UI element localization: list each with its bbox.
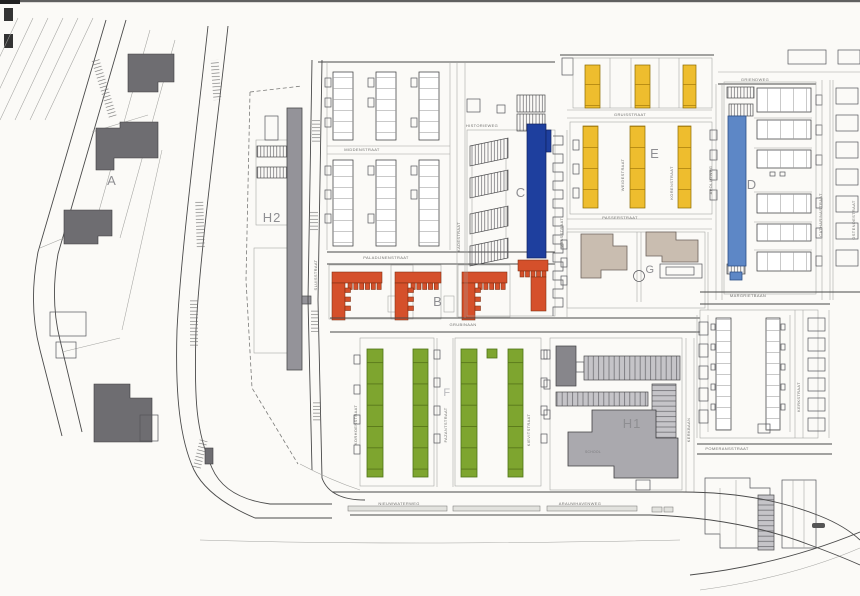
street-label: OSTENDESTRAAT — [851, 200, 856, 240]
block-label-e: E — [650, 146, 660, 161]
street-label: GRUBINAAN — [450, 322, 477, 327]
parcel-h1 — [544, 338, 694, 492]
street-label: MIDDENSTRAAT — [344, 147, 380, 152]
parcel-d — [700, 50, 860, 304]
street-label: KADESTRAAT — [456, 222, 461, 252]
district-a — [0, 18, 332, 518]
block-b-buildings — [332, 272, 507, 320]
c-slanted-rowhouses — [470, 138, 508, 266]
street-label: POMERANSSTRAAT — [705, 446, 748, 451]
block-label-a: A — [107, 173, 117, 188]
street-label: KERKBAAN — [686, 418, 691, 443]
block-label-g: G — [645, 264, 654, 276]
street-label: MARGRIETBAAN — [730, 293, 766, 298]
outline-building — [265, 116, 278, 140]
block-label-h2: H2 — [263, 210, 282, 225]
road-median — [348, 506, 673, 512]
street-label: GRUISSTRAAT — [614, 112, 646, 117]
hatch-corner-lines — [0, 18, 93, 120]
street-label: GRIENDWEG — [741, 77, 769, 82]
d-far-right-buildings — [833, 80, 858, 300]
street-label: SLUISSTRAAT — [313, 259, 318, 290]
street-label: KERKSTRAAT — [796, 382, 801, 412]
rowhouses-west — [318, 62, 555, 264]
h2-slab-building — [287, 108, 302, 370]
street-label: WEIDESTRAAT — [620, 159, 625, 192]
street-label: CATHARINASTRAAT — [818, 193, 823, 237]
street-label: PASSERSTRAAT — [602, 215, 638, 220]
block-label-b: B — [433, 294, 443, 309]
block-c-building — [527, 124, 551, 258]
street-label: FAZANTSTRAAT — [443, 407, 448, 442]
h1-dark-slab — [556, 346, 576, 386]
outline-building — [56, 342, 76, 358]
parcel-f — [354, 338, 547, 487]
rowhouse-band-north — [325, 72, 439, 140]
district-a-buildings — [64, 54, 213, 464]
h2-garage-bars — [257, 146, 287, 178]
street-label: NIEUWWATERWEG — [378, 501, 419, 506]
se-right-buildings — [808, 310, 829, 438]
block-label-c: C — [516, 185, 526, 200]
street-label: HISTORIEWEG — [466, 123, 498, 128]
street-label: APOLLOWEG — [708, 166, 713, 195]
g-school-buildings — [581, 232, 698, 278]
c-orange-building — [518, 260, 548, 311]
street-label: KIEVITSTRAAT — [526, 414, 531, 447]
rowhouse-band-south — [325, 160, 439, 246]
h2-slab-annex — [302, 296, 311, 304]
g-circle — [634, 271, 645, 282]
street-label: ARAUWHAVENWEG — [559, 501, 601, 506]
school-building-label: SCHOOL — [585, 450, 601, 454]
parcel-e — [560, 55, 717, 229]
block-label-f: F — [443, 387, 450, 399]
se-bottom-cluster — [690, 478, 860, 590]
block-label-d: D — [747, 177, 757, 192]
block-d-building — [728, 116, 746, 280]
street-label: MAASSTRAAT — [559, 218, 564, 249]
street-label: KORENSTRAAT — [669, 166, 674, 200]
parcel-g — [561, 232, 708, 310]
d-row-buildings — [757, 88, 811, 271]
se-long-buildings — [711, 318, 785, 433]
site-plan-scan: A H2 B C E D H1 G F MIDDENSTRAAT PALADIJ… — [0, 0, 860, 596]
street-label: PALADIJNENSTRAAT — [363, 255, 409, 260]
street-label: KORHOENSTRAAT — [353, 405, 358, 445]
block-label-h1: H1 — [623, 416, 642, 431]
site-plan-drawing: A H2 B C E D H1 G F MIDDENSTRAAT PALADIJ… — [0, 0, 860, 596]
